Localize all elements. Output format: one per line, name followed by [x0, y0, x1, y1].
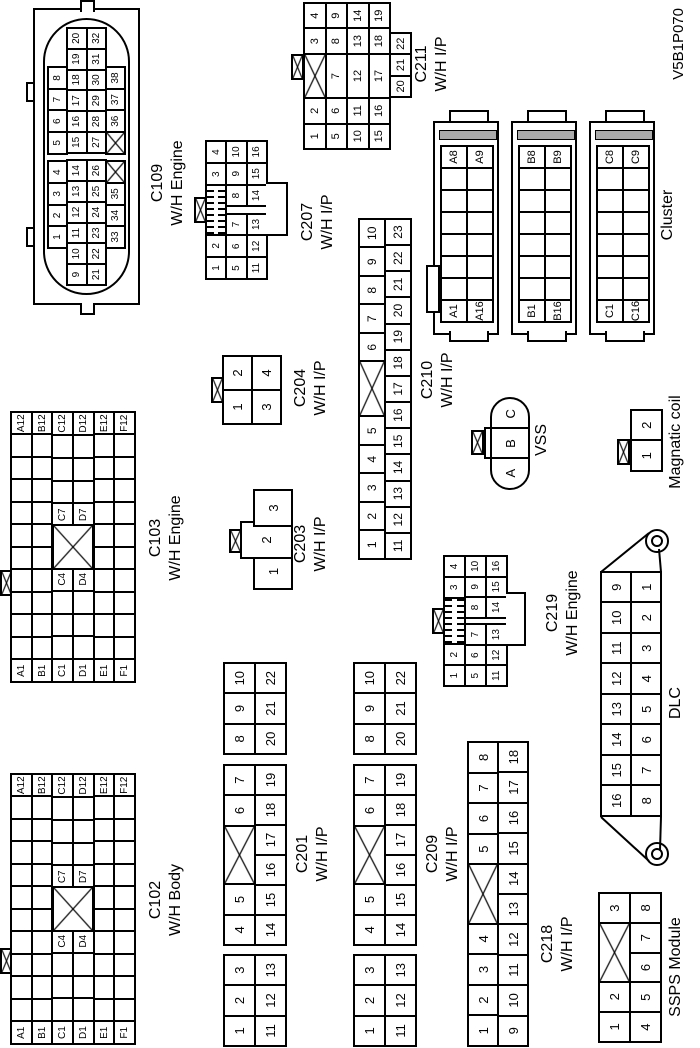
empty-cell	[440, 211, 468, 235]
pin-cell: 4	[358, 444, 386, 475]
empty-cell	[10, 841, 33, 866]
empty-cell	[31, 796, 54, 821]
pin-cell: C	[492, 399, 528, 429]
pin-cell: 7	[225, 213, 247, 237]
pin-cell: F12	[113, 411, 136, 436]
pin-cell: A12	[10, 411, 33, 436]
pin-cell: 8	[629, 892, 662, 924]
pin-cell: 5	[464, 664, 487, 687]
c209-label: C209 W/H I/P	[423, 802, 463, 906]
connector-harness: W/H I/P	[318, 176, 338, 268]
pin-cell: B1	[518, 299, 546, 323]
pin-cell: 14	[346, 2, 370, 29]
pin-cell: E1	[93, 1021, 116, 1046]
connector-name: C207	[298, 176, 318, 268]
pin-cell: 8	[325, 27, 349, 54]
connector-c201-group1: 123111213	[223, 954, 287, 1047]
pin-cell: 15	[600, 754, 632, 787]
empty-cell	[10, 524, 33, 549]
pin-cell: 9	[497, 1015, 529, 1047]
pin-cell: 19	[368, 2, 392, 29]
pin-cell: 15	[246, 162, 268, 186]
pin-cell: 10	[346, 123, 370, 150]
pin-cell: 14	[384, 914, 417, 946]
pin-cell: F1	[113, 659, 136, 684]
pin-cell: 10	[225, 140, 247, 164]
pin-cell: 12	[485, 644, 508, 667]
c103-label: C103 W/H Engine	[146, 478, 186, 598]
pin-cell: 9	[225, 162, 247, 186]
pin-cell: 7	[467, 772, 499, 805]
pin-cell: 18	[368, 27, 392, 54]
pin-cell: 30	[86, 69, 107, 92]
empty-cell	[10, 998, 33, 1023]
pin-row: 202122	[384, 662, 417, 755]
empty-cell	[72, 842, 95, 867]
pin-cell: 18	[254, 794, 287, 826]
pin-cell: 14	[66, 159, 87, 182]
pin-cell: 1	[630, 440, 663, 473]
pin-cell: 11	[246, 256, 268, 280]
pin-cell: 13	[254, 954, 287, 986]
lock-channel	[443, 597, 466, 646]
pin-cell: 9	[325, 2, 349, 29]
pin-cell: D12	[72, 411, 95, 436]
empty-cell	[113, 569, 136, 594]
pin-cell: 4	[47, 160, 68, 184]
pin-cell: C1	[596, 299, 624, 323]
connector-ssps-grid: 12345678	[598, 892, 662, 1043]
pin-cell: 5	[47, 131, 68, 155]
pin-cell: 1	[47, 225, 68, 249]
pin-cell: 11	[384, 1015, 417, 1047]
pin-cell: D1	[72, 1020, 95, 1045]
pin-row: B1B8	[518, 145, 546, 323]
lock-channel	[205, 184, 227, 236]
pin-row: 8910	[353, 662, 386, 755]
empty-cell	[113, 998, 136, 1023]
pin-cell: 2	[467, 984, 499, 1017]
c219-label: C219 W/H Engine	[543, 553, 583, 673]
pin-cell: 24	[86, 201, 107, 224]
empty-cell	[31, 636, 54, 661]
pin-cell: 1	[353, 1015, 386, 1047]
empty-cell	[31, 863, 54, 888]
pin-row: 12	[222, 355, 253, 425]
pin-cell: 7	[464, 623, 487, 646]
empty-cell	[440, 189, 468, 213]
empty-cell	[113, 434, 136, 459]
pin-cell: 3	[223, 954, 256, 986]
pin-cell: 9	[600, 571, 632, 604]
empty-cell	[113, 456, 136, 481]
pin-cell: 12	[346, 53, 370, 99]
pin-cell: 14	[485, 596, 508, 619]
empty-cell	[113, 953, 136, 978]
pin-cell: 28	[86, 110, 107, 133]
pin-cell: D12	[72, 773, 95, 798]
pin-cell: 13	[384, 480, 412, 508]
connector-name: C201	[293, 802, 313, 906]
empty-cell	[440, 167, 468, 191]
empty-cell	[72, 613, 95, 638]
connector-name: C210	[418, 330, 438, 430]
pin-cell: 14	[384, 453, 412, 481]
pin-row: 202122	[254, 662, 287, 755]
connector-harness: W/H Engine	[168, 108, 188, 258]
empty-cell	[93, 953, 116, 978]
pin-cell: 5	[629, 981, 662, 1013]
c204-label: C204 W/H I/P	[291, 346, 331, 430]
empty-cell	[93, 796, 116, 821]
pin-cell: 19	[384, 764, 417, 796]
pin-row: A1A12	[10, 411, 33, 683]
pin-cell: 16	[368, 97, 392, 124]
empty-cell	[10, 614, 33, 639]
c210-label: C210 W/H I/P	[418, 330, 458, 430]
pin-cell: 12	[66, 201, 87, 224]
empty-cell	[10, 591, 33, 616]
empty-cell	[51, 842, 74, 867]
empty-cell	[596, 255, 624, 279]
pin-row: 34	[251, 355, 282, 425]
empty-cell	[440, 233, 468, 257]
figure-code: V5B1P070	[670, 8, 687, 168]
pin-cell: F1	[113, 1021, 136, 1046]
empty-cell	[544, 255, 572, 279]
pin-cell: 13	[497, 893, 529, 925]
connector-c201-group3: 8910202122	[223, 662, 287, 755]
pin-cell: 36	[105, 109, 126, 133]
pin-row: F1F12	[113, 773, 136, 1045]
pin-cell: A16	[466, 299, 494, 323]
empty-cell	[10, 886, 33, 911]
empty-cell	[596, 233, 624, 257]
empty-cell	[31, 998, 54, 1023]
pin-cell: 1	[222, 389, 253, 425]
empty-cell	[622, 211, 650, 235]
pin-cell: 14	[497, 863, 529, 895]
empty-cell	[51, 457, 74, 482]
empty-cell	[10, 796, 33, 821]
pin-cell: 12	[600, 663, 632, 696]
pin-cell: D4	[72, 929, 95, 954]
pin-cell: 3	[303, 27, 327, 54]
pin-cell: 1	[443, 664, 466, 687]
empty-cell	[31, 479, 54, 504]
pin-cell: 2	[303, 97, 327, 124]
empty-cell	[113, 614, 136, 639]
connector-name: C204	[291, 346, 311, 430]
pin-cell: 7	[325, 53, 349, 99]
empty-cell	[113, 479, 136, 504]
connector-c210-grid: 1234567891011121314151617181920212223	[358, 218, 412, 560]
empty-cell	[93, 501, 116, 526]
empty-cell	[31, 976, 54, 1001]
connector-name: C102	[146, 840, 166, 960]
pin-cell: 22	[254, 662, 287, 694]
empty-cell	[31, 591, 54, 616]
pin-cell: 22	[384, 244, 412, 272]
gap	[105, 27, 126, 66]
empty-cell	[113, 546, 136, 571]
empty-cell	[93, 818, 116, 843]
pin-cell: 29	[86, 89, 107, 112]
pin-cell: 20	[66, 27, 87, 50]
pin-cell: E12	[93, 773, 116, 798]
pin-row: 8910	[223, 662, 256, 755]
pin-row: 1234	[303, 2, 327, 150]
pin-row: F1F12	[113, 411, 136, 683]
empty-cell	[72, 975, 95, 1000]
pin-cell: 6	[353, 794, 386, 826]
pin-row: A16A9	[466, 145, 494, 323]
pin-cell: 5	[358, 416, 386, 447]
cluster-b-grid: B1B8B16B9	[518, 145, 572, 323]
connector-cluster-b: B1B8B16B9	[511, 121, 577, 335]
pin-row: A1A8	[440, 145, 468, 323]
pin-cell: 15	[66, 131, 87, 154]
c201-label: C201 W/H I/P	[293, 802, 333, 906]
pin-cell: 11	[254, 1015, 287, 1047]
pin-cell: 6	[47, 109, 68, 133]
empty-cell	[31, 614, 54, 639]
c207-label: C207 W/H I/P	[298, 176, 338, 268]
empty-cell	[31, 546, 54, 571]
pin-cell: 10	[600, 602, 632, 635]
pin-cell: 4	[223, 914, 256, 946]
pin-cell: 14	[600, 724, 632, 757]
pin-cell: 18	[384, 349, 412, 377]
pin-cell: 21	[254, 692, 287, 724]
connector-cluster-c: C1C8C16C9	[589, 121, 655, 335]
empty-cell	[93, 546, 116, 571]
empty-cell	[113, 886, 136, 911]
connector-name: C218	[538, 884, 558, 1004]
connector-name: C211	[412, 16, 432, 112]
pin-cell: 11	[66, 222, 87, 245]
pin-cell: 1	[223, 1015, 256, 1047]
c109-side-tab	[80, 0, 95, 12]
pin-cell: 7	[630, 754, 662, 787]
pin-cell: 10	[223, 662, 256, 694]
cluster-key-bar	[517, 130, 575, 140]
pin-cell: 2	[598, 981, 631, 1013]
empty-cell	[51, 480, 74, 505]
blocked-cell	[353, 825, 386, 886]
c218-label: C218 W/H I/P	[538, 884, 578, 1004]
pin-row: E1E12	[93, 773, 116, 1045]
pin-cell: 1	[630, 571, 662, 604]
c211-label: C211 W/H I/P	[412, 16, 452, 112]
pin-cell: 13	[246, 213, 268, 237]
empty-cell	[93, 908, 116, 933]
empty-cell	[113, 524, 136, 549]
vss-center-cavity	[484, 427, 530, 459]
pin-cell: 19	[66, 48, 87, 71]
pin-row: 123	[223, 954, 256, 1047]
connector-harness: W/H I/P	[313, 802, 333, 906]
pin-cell: 8	[464, 596, 487, 619]
connector-magcoil-grid: 12	[630, 409, 663, 472]
pin-cell: 20	[384, 723, 417, 755]
empty-cell	[518, 167, 546, 191]
pin-cell: 1	[358, 530, 386, 561]
pin-cell: 1	[205, 256, 227, 280]
pin-cell: 12	[246, 234, 268, 258]
pin-row: 111213141516	[246, 140, 268, 280]
pin-cell: 13	[485, 623, 508, 646]
empty-cell	[93, 524, 116, 549]
pin-row: 12345678	[467, 741, 499, 1047]
pin-cell: A8	[440, 145, 468, 169]
pin-cell: 9	[358, 247, 386, 278]
pin-cell: 16	[497, 802, 529, 834]
empty-cell	[440, 277, 468, 301]
pin-cell: C8	[596, 145, 624, 169]
empty-cell	[51, 997, 74, 1022]
c109-side-tab	[80, 303, 95, 315]
empty-cell	[622, 255, 650, 279]
pin-cell: B1	[31, 659, 54, 684]
empty-cell	[10, 456, 33, 481]
pin-cell: 12	[254, 984, 287, 1016]
pin-cell: 3	[630, 632, 662, 665]
pin-row: A1A12	[10, 773, 33, 1045]
pin-cell: 11	[600, 632, 632, 665]
blocked-cell	[467, 863, 499, 924]
pin-row: 333435363738	[105, 27, 126, 286]
c203-label: C203 W/H I/P	[291, 502, 331, 586]
pin-cell: F12	[113, 773, 136, 798]
pin-cell: 2	[630, 602, 662, 635]
pin-cell: B12	[31, 411, 54, 436]
pin-cell: C12	[51, 773, 74, 798]
pin-row: 141516171819	[384, 764, 417, 946]
connector-harness: W/H Engine	[166, 478, 186, 598]
pin-cell: 16	[246, 140, 268, 164]
cluster-tab	[527, 110, 567, 121]
pin-cell: 10	[358, 218, 386, 249]
connector-c211-grid: 12345678910111213141516171819	[303, 2, 391, 150]
pin-cell: 15	[368, 123, 392, 150]
ssps-label: SSPS Module	[666, 886, 686, 1048]
pin-cell: 2	[358, 501, 386, 532]
pin-cell: 31	[86, 48, 107, 71]
empty-cell	[466, 189, 494, 213]
pin-cell: 6	[630, 724, 662, 757]
pin-cell: 8	[223, 723, 256, 755]
pin-cell: 5	[353, 883, 386, 915]
pin-row: 12345678910	[358, 218, 386, 560]
pin-cell: 10	[497, 984, 529, 1016]
pin-row: B1B12	[31, 411, 54, 683]
empty-cell	[113, 501, 136, 526]
empty-cell	[596, 211, 624, 235]
pin-row: 161514131211109	[600, 571, 632, 817]
pin-cell: 7	[47, 88, 68, 112]
cluster-tab	[527, 331, 567, 342]
pin-cell: 6	[325, 97, 349, 124]
empty-cell	[51, 819, 74, 844]
pin-row: 4567	[353, 764, 386, 946]
pin-row: 45678	[629, 892, 662, 1043]
pin-cell: 17	[384, 375, 412, 403]
pin-cell: A	[492, 458, 528, 488]
blocked-cell	[303, 53, 327, 99]
pin-cell: 32	[86, 27, 107, 50]
pin-cell: 3	[443, 576, 466, 599]
pin-row: 202122	[389, 32, 412, 98]
pin-cell: 16	[485, 555, 508, 578]
pin-cell: A1	[10, 1021, 33, 1046]
pin-cell: 15	[384, 427, 412, 455]
pin-cell: 21	[384, 692, 417, 724]
empty-cell	[622, 189, 650, 213]
pin-cell: 23	[86, 222, 107, 245]
empty-cell	[518, 189, 546, 213]
connector-c218-grid: 123456789101112131415161718	[467, 741, 529, 1047]
pin-cell: 16	[254, 854, 287, 886]
pin-cell: 4	[353, 914, 386, 946]
blocked-cell	[105, 160, 126, 184]
pin-row: 4567	[223, 764, 256, 946]
pin-cell: 19	[254, 764, 287, 796]
c219-bracket	[506, 592, 526, 646]
cluster-tab	[605, 110, 645, 121]
empty-cell	[31, 908, 54, 933]
pin-cell: C4	[51, 929, 74, 954]
empty-cell	[518, 277, 546, 301]
pin-cell: 9	[223, 692, 256, 724]
pin-cell: 3	[47, 182, 68, 206]
empty-cell	[10, 569, 33, 594]
empty-cell	[10, 546, 33, 571]
cluster-tab	[449, 110, 489, 121]
pin-cell: 10	[66, 242, 87, 265]
pin-cell: 15	[497, 832, 529, 864]
empty-cell	[93, 863, 116, 888]
empty-cell	[113, 796, 136, 821]
pin-cell: 5	[223, 883, 256, 915]
pin-row: 1011121314	[346, 2, 370, 150]
connector-pinout-diagram: 1234567891011121314151617181920212223242…	[0, 0, 700, 1048]
connector-harness: W/H I/P	[443, 802, 463, 906]
pin-cell: 14	[254, 914, 287, 946]
pin-cell: 10	[464, 555, 487, 578]
connector-c219-grid: 12345678910111213141516	[443, 555, 508, 687]
pin-cell: 6	[629, 952, 662, 984]
connector-harness: W/H I/P	[311, 502, 331, 586]
empty-cell	[518, 233, 546, 257]
cluster-tab	[605, 331, 645, 342]
pin-cell: B9	[544, 145, 572, 169]
gap	[105, 247, 126, 286]
pin-cell: 16	[600, 785, 632, 818]
pin-cell: 4	[630, 663, 662, 696]
pin-cell: 13	[346, 27, 370, 54]
pin-cell: B1	[31, 1021, 54, 1046]
pin-cell: 3	[353, 954, 386, 986]
empty-cell	[31, 434, 54, 459]
pin-cell: 11	[346, 97, 370, 124]
connector-c209-group1: 123111213	[353, 954, 417, 1047]
connector-harness: W/H Engine	[563, 553, 583, 673]
pin-row: 87654321	[630, 571, 662, 817]
pin-cell: E12	[93, 411, 116, 436]
empty-cell	[518, 211, 546, 235]
blocked-cell	[598, 922, 631, 982]
